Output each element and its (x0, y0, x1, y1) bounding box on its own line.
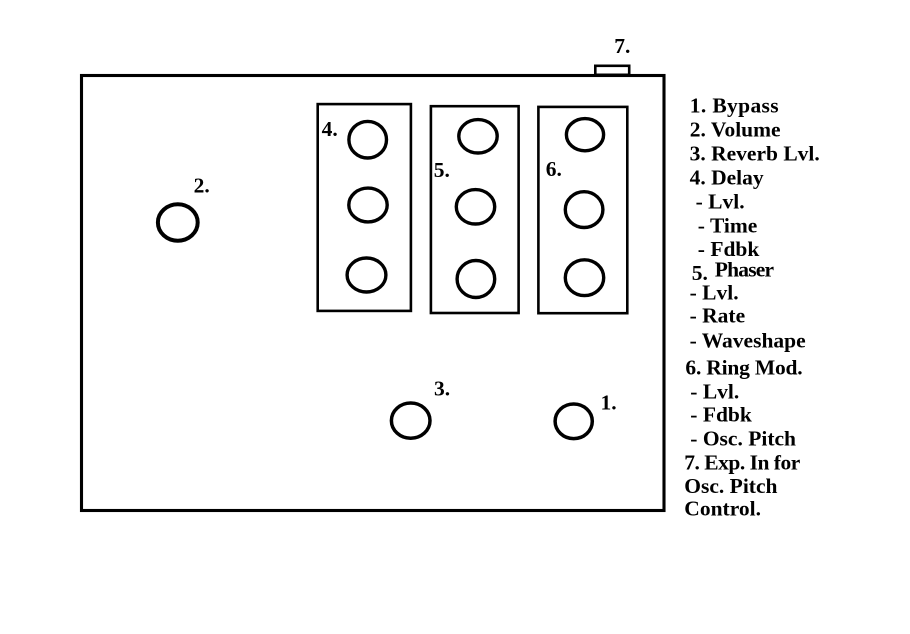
svg-text:7.: 7. (614, 34, 630, 58)
svg-text:4.: 4. (322, 117, 338, 141)
svg-text:2.: 2. (194, 174, 210, 198)
svg-text:6.: 6. (546, 157, 562, 181)
svg-text:- Lvl.: - Lvl. (690, 379, 739, 403)
svg-text:3.: 3. (434, 377, 450, 401)
svg-text:3. Reverb Lvl.: 3. Reverb Lvl. (690, 142, 820, 166)
svg-text:1.: 1. (601, 391, 617, 415)
svg-text:- Lvl.: - Lvl. (696, 190, 745, 214)
svg-text:- Waveshape: - Waveshape (690, 328, 806, 352)
svg-text:5.: 5. (434, 158, 450, 182)
svg-text:2. Volume: 2. Volume (690, 117, 781, 141)
svg-text:7. Exp. In for: 7. Exp. In for (684, 450, 800, 474)
svg-text:- Osc. Pitch: - Osc. Pitch (690, 426, 796, 450)
svg-text:Osc. Pitch: Osc. Pitch (684, 474, 777, 498)
svg-text:1. Bypass: 1. Bypass (690, 93, 779, 117)
svg-text:6. Ring Mod.: 6. Ring Mod. (685, 355, 802, 379)
svg-text:- Fdbk: - Fdbk (690, 402, 752, 426)
svg-text:4. Delay: 4. Delay (690, 165, 764, 189)
svg-text:- Lvl.: - Lvl. (690, 280, 739, 304)
svg-text:Phaser: Phaser (715, 258, 775, 282)
svg-text:- Rate: - Rate (690, 304, 746, 328)
svg-text:Control.: Control. (684, 497, 761, 521)
svg-text:- Time: - Time (698, 213, 758, 237)
